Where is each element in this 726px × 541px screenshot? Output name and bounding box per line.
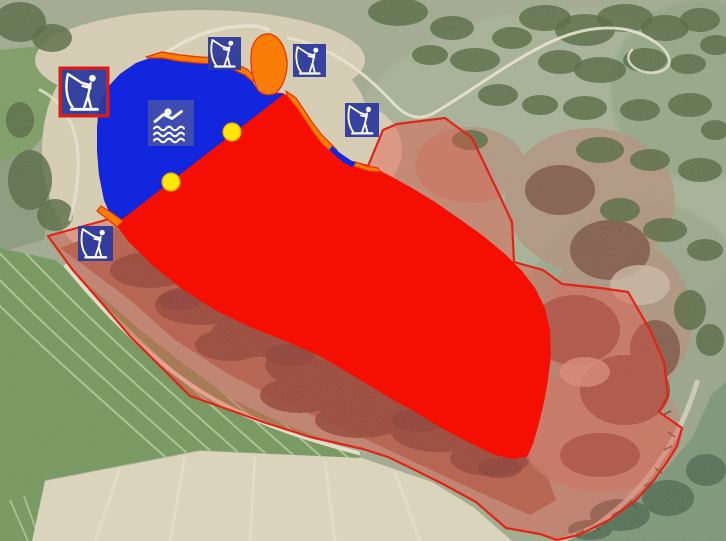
buoy-marker[interactable] [162, 173, 180, 191]
swimmer-icon[interactable] [148, 100, 194, 146]
angler-icon[interactable] [208, 37, 241, 70]
angler-icon[interactable] [78, 226, 113, 261]
angler-icon[interactable] [345, 103, 379, 137]
map-canvas[interactable] [0, 0, 726, 541]
aerial-map[interactable] [0, 0, 726, 541]
angler-icon-highlighted[interactable] [60, 68, 108, 116]
angler-icon[interactable] [293, 44, 326, 77]
bank-pond-orange[interactable] [251, 34, 287, 95]
buoy-marker[interactable] [223, 123, 241, 141]
